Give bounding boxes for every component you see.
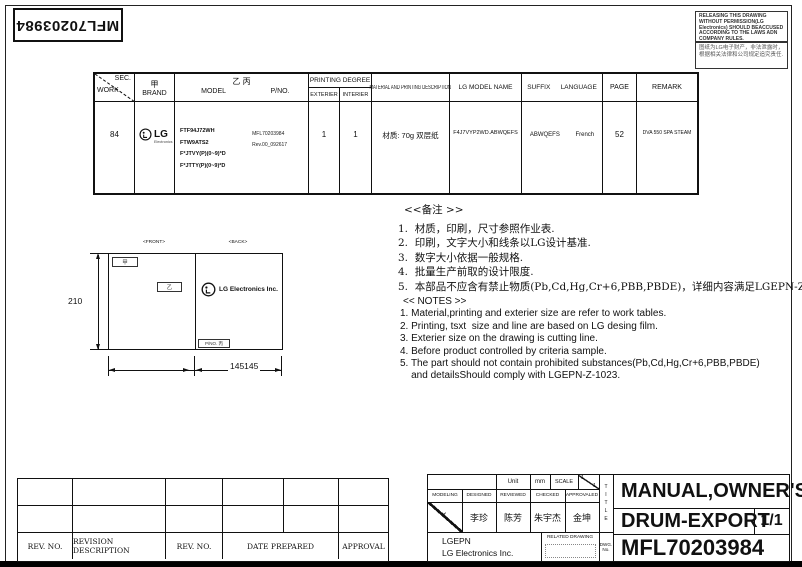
dim-height-label: 210 xyxy=(68,296,82,306)
checked-label: CHECKED xyxy=(530,489,565,502)
rev-header-revno-1: REV. NO. xyxy=(18,533,73,559)
spec-value-brand: LG Electronics xyxy=(135,102,175,193)
notes-cn-item: 1. 材质，印刷，尺寸参照作业表. xyxy=(398,222,793,237)
notes-en-item: 3. Exterier size on the drawing is cutti… xyxy=(400,333,793,345)
scale-value: 1 1 xyxy=(578,475,599,489)
pno-line2: Rev.00_092617 xyxy=(252,140,308,151)
lg-logo-icon xyxy=(139,128,152,141)
checked-name: 朱宇杰 xyxy=(530,502,565,532)
notes-en-item: 4. Before product controlled by criteria… xyxy=(400,346,793,358)
spec-header-work: WORK xyxy=(97,87,119,94)
pno-label: P/NO. xyxy=(252,88,308,102)
ext-line xyxy=(281,356,282,376)
model-mark: 乙 丙 xyxy=(175,74,308,88)
spec-value-material: 材质: 70g 双层纸 xyxy=(372,102,450,193)
brand-label: BRAND xyxy=(142,90,167,97)
notes-en-item: 1. Material,printing and exterier size a… xyxy=(400,308,793,320)
release-notice-cn-line2: 根据相关法律和公司规定追究责任. xyxy=(699,52,784,59)
rev-cell-empty xyxy=(339,506,388,533)
spec-header-interier: INTERIER xyxy=(340,88,372,102)
notes-cn-item: 2. 印刷，文字大小和线条以LG设计基准. xyxy=(398,236,793,251)
dim-arrow xyxy=(109,368,115,372)
notes-en-item: 5. The part should not contain prohibite… xyxy=(400,358,793,370)
spec-value-work: 84 xyxy=(95,102,135,193)
rev-cell-empty xyxy=(18,506,73,533)
reviewed-label: REVIEWED xyxy=(496,489,530,502)
model-list: FTF94J72WH FTW9ATS2 F*JTVY(P)(0~9)*D F*J… xyxy=(175,102,252,193)
front-model-marker: 乙 xyxy=(157,282,182,292)
rev-cell-empty xyxy=(73,479,166,506)
sheet-number: 1/1 xyxy=(754,508,789,534)
spec-value-exterier: 1 xyxy=(309,102,340,193)
corner-pno-text: MFL70203984 xyxy=(16,17,119,34)
modeling-label: MODELING xyxy=(428,489,462,502)
dim-arrow xyxy=(196,368,202,372)
back-panel xyxy=(195,253,283,350)
front-brand-marker: 甲 xyxy=(112,257,138,267)
pno-line1: MFL70203984 xyxy=(252,129,308,140)
back-panel-label: <BACK> xyxy=(208,240,268,245)
notes-cn: <<备注 >> 1. 材质，印刷，尺寸参照作业表. 2. 印刷，文字大小和线条以… xyxy=(398,203,793,294)
rev-header-approval: APPROVAL xyxy=(339,533,388,559)
spec-header-sec-work: SEC. WORK xyxy=(95,74,135,102)
rev-header-date-prepared: DATE PREPARED xyxy=(223,533,339,559)
spec-header-sec: SEC. xyxy=(115,75,131,82)
model-item: F*JTVY(P)(0~9)*D xyxy=(180,149,252,161)
scale-numerator: 1 xyxy=(581,475,584,481)
spec-header-printing-degree: PRINTING DEGREE xyxy=(309,74,372,88)
related-drawing-box xyxy=(545,544,596,558)
notes-en-title: << NOTES >> xyxy=(400,296,793,308)
ext-line xyxy=(108,356,109,376)
title-block: Unit mm SCALE 1 1 MODELING DESIGNED REVI… xyxy=(427,474,790,562)
dim-arrow-up xyxy=(96,253,100,259)
spec-value-interier: 1 xyxy=(340,102,372,193)
related-drawing-label: RELATED DRAWING xyxy=(541,533,599,541)
notes-cn-item: 5. 本部品不应含有禁止物质(Pb,Cd,Hg,Cr+6,PBB,PBDE)，详… xyxy=(398,280,793,295)
unit-label: Unit xyxy=(496,475,530,489)
language-value: French xyxy=(575,132,594,193)
front-panel-label: <FRONT> xyxy=(124,240,184,245)
spec-value-remark: DVA 550 SPA STEAM xyxy=(637,102,697,193)
rev-cell-empty xyxy=(166,506,223,533)
notes-cn-item: 4. 批量生产前取的设计限度. xyxy=(398,265,793,280)
spec-header-brand: 甲 BRAND xyxy=(135,74,175,102)
model-label: MODEL xyxy=(175,88,252,102)
suffix-value: ABWQEFS xyxy=(530,132,560,193)
spec-header-remark: REMARK xyxy=(637,74,697,102)
company-cell: LGEPN LG Electronics Inc. xyxy=(428,532,541,561)
corner-pno-box: MFL70203984 xyxy=(13,8,123,42)
spec-header-model-pno: 乙 丙 MODEL P/NO. xyxy=(175,74,309,102)
modeling-cell: ✕ xyxy=(428,502,462,532)
dim-arrow xyxy=(275,368,281,372)
spec-value-page: 52 xyxy=(603,102,637,193)
back-logo-text: LG Electronics Inc. xyxy=(219,286,278,293)
model-item: F*JTTY(P)(0~9)*D xyxy=(180,161,252,173)
spec-header-material: MATERIAL AND PRINTING DESCRIPTION xyxy=(372,74,450,102)
modeling-mark: ✕ xyxy=(441,511,447,519)
material-label: MATERIAL AND PRINTING DESCRIPTION xyxy=(370,85,451,91)
scale-label: SCALE xyxy=(550,475,578,489)
spec-header-suffix-language: SUFFIX LANGUAGE xyxy=(522,74,603,102)
lg-logo-icon xyxy=(201,282,216,297)
designed-label: DESIGNED xyxy=(462,489,496,502)
ext-line xyxy=(194,356,195,376)
designed-name: 李珍 xyxy=(462,502,496,532)
rev-cell-empty xyxy=(73,506,166,533)
pno-values: MFL70203984 Rev.00_092617 xyxy=(252,102,308,193)
notes-cn-item: 3. 数字大小依据一般规格. xyxy=(398,251,793,266)
release-notice-cn-line1: 图纸为LG电子财产，非法泄露时， xyxy=(699,45,784,52)
dim-arrow xyxy=(183,368,189,372)
dim-arrow-down xyxy=(96,344,100,350)
release-notice-cn: 图纸为LG电子财产，非法泄露时， 根据相关法律和公司规定追究责任. xyxy=(695,42,788,69)
title-strip: TITLE xyxy=(599,475,613,532)
company-line2: LG Electronics Inc. xyxy=(442,547,541,559)
revision-table: REV. NO. REVISION DESCRIPTION REV. NO. D… xyxy=(17,478,389,562)
rev-header-description: REVISION DESCRIPTION xyxy=(73,533,166,559)
language-label: LANGUAGE xyxy=(561,84,597,91)
spec-value-model-pno: FTF94J72WH FTW9ATS2 F*JTVY(P)(0~9)*D F*J… xyxy=(175,102,309,193)
related-drawing-cell: RELATED DRAWING xyxy=(541,532,599,561)
notes-en-item: and detailsShould comply with LGEPN-Z-10… xyxy=(400,370,793,382)
rev-cell-empty xyxy=(18,479,73,506)
rev-cell-empty xyxy=(166,479,223,506)
dwg-no-strip: DWG. No. xyxy=(599,532,613,561)
rev-cell-empty xyxy=(284,506,339,533)
dim-width-label: 145145 xyxy=(228,361,260,371)
notes-en-item: 2. Printing, tsxt size and line are base… xyxy=(400,321,793,333)
spec-value-suffix-language: ABWQEFS French xyxy=(522,102,603,193)
spec-table: SEC. WORK 甲 BRAND 乙 丙 MODEL P/NO. PRINTI… xyxy=(93,72,699,195)
reviewed-name: 陈芳 xyxy=(496,502,530,532)
notes-cn-title: <<备注 >> xyxy=(398,203,793,218)
back-logo: LG Electronics Inc. xyxy=(201,282,278,297)
doc-title-line2: DRUM-EXPORT xyxy=(613,508,754,534)
brand-mark: 甲 xyxy=(151,79,159,90)
rev-header-revno-2: REV. NO. xyxy=(166,533,223,559)
spec-header-exterier: EXTERIER xyxy=(309,88,340,102)
dim-line-height xyxy=(98,255,99,349)
suffix-label: SUFFIX xyxy=(527,84,550,91)
doc-title-line1: MANUAL,OWNER'S xyxy=(613,475,789,508)
rev-cell-empty xyxy=(223,479,284,506)
dwg-number: MFL70203984 xyxy=(613,534,789,561)
brand-logo-sub: Electronics xyxy=(154,140,173,144)
notes-en: << NOTES >> 1. Material,printing and ext… xyxy=(400,296,793,383)
front-panel xyxy=(108,253,196,350)
approvaled-label: APPROVALED xyxy=(565,489,599,502)
approvaled-name: 金坤 xyxy=(565,502,599,532)
spec-header-lg-model-name: LG MODEL NAME xyxy=(450,74,522,102)
title-vertical-label: TITLE xyxy=(603,484,609,524)
release-notice-en: RELEASING THIS DRAWING WITHOUT PERMISSIO… xyxy=(695,11,788,42)
rev-cell-empty xyxy=(284,479,339,506)
company-line1: LGEPN xyxy=(442,535,541,547)
spec-value-lg-model-name: F4J7VYP2WD.ABWQEFS xyxy=(450,102,522,193)
model-item: FTF94J72WH xyxy=(180,126,252,138)
rev-cell-empty xyxy=(223,506,284,533)
drawing-sheet: MFL70203984 RELEASING THIS DRAWING WITHO… xyxy=(0,0,802,567)
back-pno-box: P/NO. 丙 xyxy=(198,339,230,348)
spec-header-page: PAGE xyxy=(603,74,637,102)
dwg-label2: No. xyxy=(602,547,609,552)
rev-cell-empty xyxy=(339,479,388,506)
brand-logo-text: LG xyxy=(154,129,168,140)
unit-value: mm xyxy=(530,475,550,489)
model-item: FTW9ATS2 xyxy=(180,138,252,150)
